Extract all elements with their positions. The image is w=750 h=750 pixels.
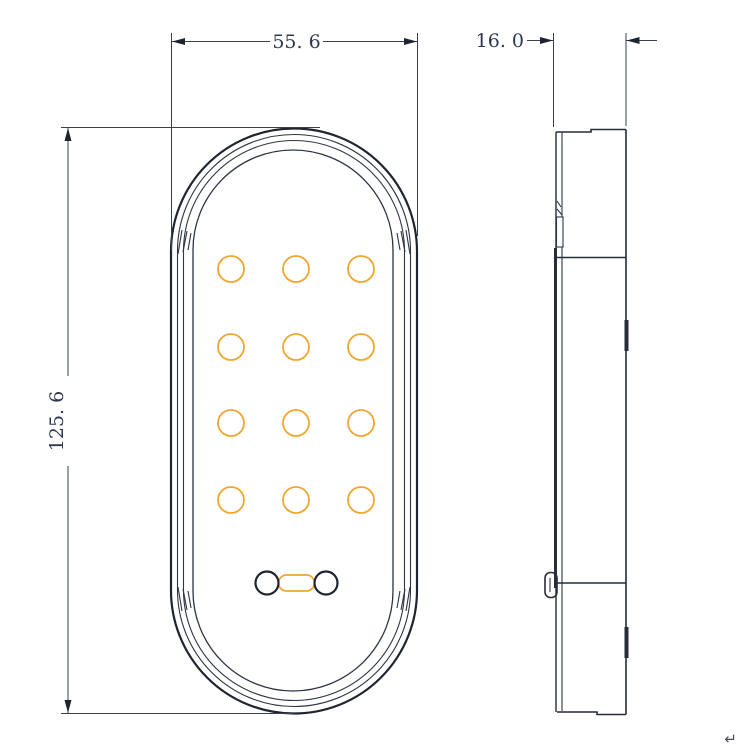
led-circle [218,256,244,282]
drawing-svg: 55. 6 125. 6 16. 0 ↵ [0,0,750,750]
side-left-clip-mark [557,209,562,215]
dim-height-label: 125. 6 [46,391,68,451]
dim-depth: 16. 0 [476,30,657,127]
side-top-edge [556,130,626,133]
arrowhead [65,700,72,713]
dim-depth-label: 16. 0 [476,30,524,52]
led-circle [218,334,244,360]
led-circle [218,487,244,513]
led-circle [348,334,374,360]
front-view [171,129,417,714]
arrowhead [540,37,553,44]
side-left-clip-window [557,217,564,247]
side-view [545,130,627,715]
notch-mark [397,591,400,608]
parting-line-marks [178,230,410,611]
front-outline-third [184,141,405,701]
side-left-clip-mark [557,201,561,207]
led-circle [348,410,374,436]
led-grid [218,256,374,513]
arrowhead [65,128,72,141]
arrowhead [404,38,417,45]
front-outline-second [178,135,411,707]
led-circle [348,256,374,282]
front-face-outline [193,150,393,691]
led-circle [283,410,309,436]
front-outline-outer [171,129,417,714]
side-bottom-edge [557,712,626,715]
led-circle [283,256,309,282]
dim-width-label: 55. 6 [272,31,320,53]
bottom-connector [256,572,338,595]
technical-drawing: 55. 6 125. 6 16. 0 ↵ [0,0,750,750]
notch-mark [397,233,400,250]
led-circle [218,410,244,436]
notch-mark [188,591,191,608]
led-circle [348,487,374,513]
arrowhead [172,38,185,45]
arrowhead [627,37,640,44]
led-circle [283,334,309,360]
led-circle [283,487,309,513]
notch-mark [188,233,191,250]
connector-hole-right [315,572,338,595]
connector-bridge [279,575,315,591]
connector-hole-left [256,572,279,595]
return-mark: ↵ [724,730,737,748]
